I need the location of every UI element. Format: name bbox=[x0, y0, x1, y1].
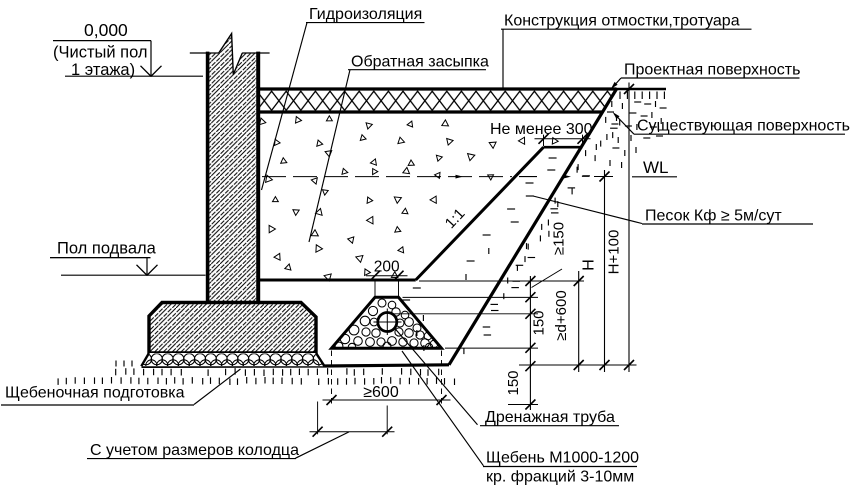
svg-text:200: 200 bbox=[374, 259, 400, 276]
svg-text:1 этажа): 1 этажа) bbox=[71, 61, 135, 79]
svg-text:кр. фракций 3-10мм: кр. фракций 3-10мм bbox=[486, 469, 634, 486]
svg-text:150: 150 bbox=[505, 370, 522, 395]
svg-text:WL: WL bbox=[643, 158, 669, 177]
svg-text:Пол подвала: Пол подвала bbox=[57, 240, 157, 258]
svg-text:С учетом размеров колодца: С учетом размеров колодца bbox=[90, 442, 299, 459]
svg-text:150: 150 bbox=[531, 310, 548, 335]
svg-text:Щебень М1000-1200: Щебень М1000-1200 bbox=[486, 450, 639, 467]
svg-text:0,000: 0,000 bbox=[84, 20, 128, 40]
svg-text:Проектная поверхность: Проектная поверхность bbox=[624, 62, 800, 79]
svg-text:Гидроизоляция: Гидроизоляция bbox=[309, 6, 422, 23]
svg-text:Существующая поверхность: Существующая поверхность bbox=[637, 118, 850, 135]
svg-text:(Чистый пол: (Чистый пол bbox=[53, 44, 148, 62]
svg-text:H+100: H+100 bbox=[606, 230, 623, 275]
svg-text:≥d+600: ≥d+600 bbox=[553, 290, 570, 340]
svg-text:H: H bbox=[581, 259, 598, 271]
svg-text:Щебеночная подготовка: Щебеночная подготовка bbox=[5, 385, 185, 402]
svg-text:≥600: ≥600 bbox=[363, 384, 399, 401]
svg-text:Дренажная труба: Дренажная труба bbox=[485, 409, 615, 426]
svg-text:Конструкция отмостки,тротуара: Конструкция отмостки,тротуара bbox=[504, 13, 740, 30]
svg-text:≥150: ≥150 bbox=[551, 222, 568, 255]
svg-text:Не менее 300: Не менее 300 bbox=[490, 121, 593, 138]
svg-text:Обратная засыпка: Обратная засыпка bbox=[351, 54, 489, 71]
svg-text:Песок Кф ≥ 5м/сут: Песок Кф ≥ 5м/сут bbox=[645, 208, 782, 225]
